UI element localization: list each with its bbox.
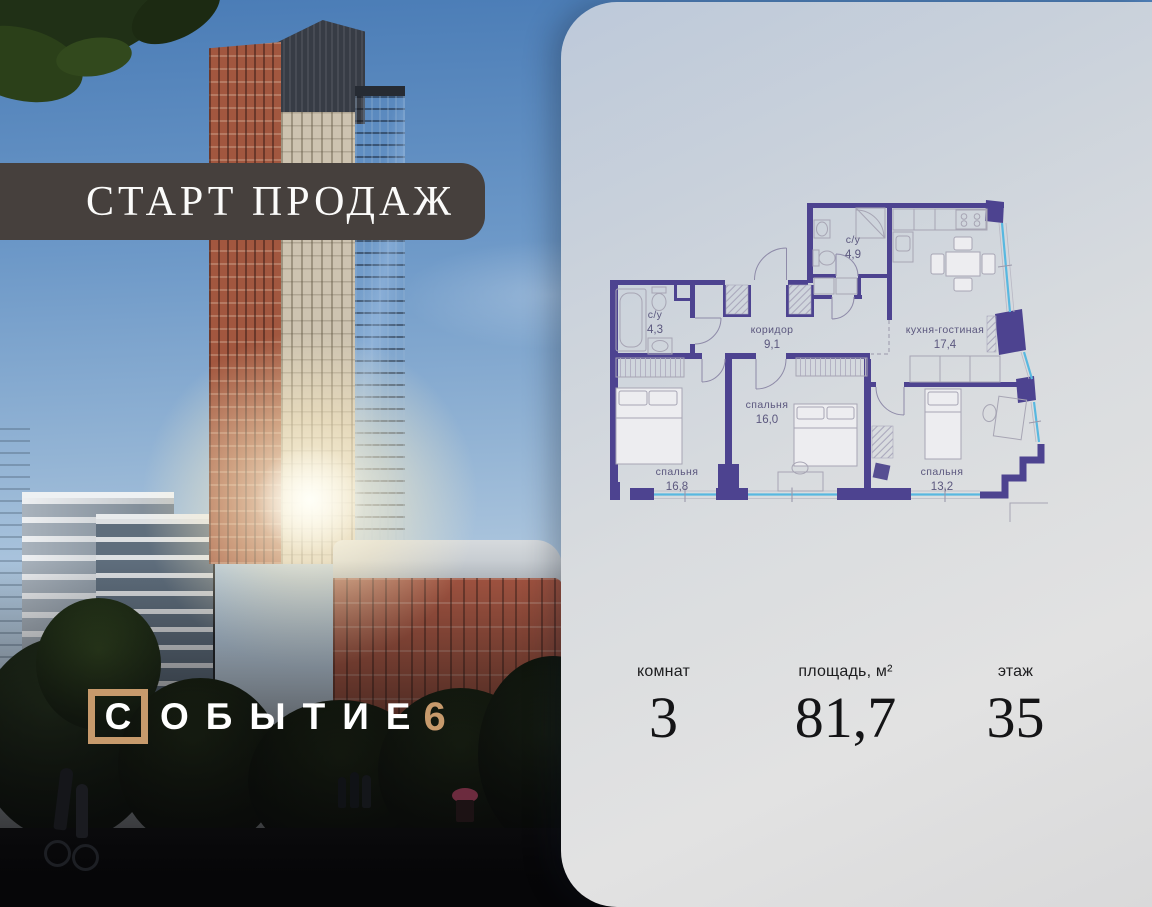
room-name-bedroom-center: спальня (746, 399, 789, 411)
room-area-kitchen-living: 17,4 (934, 339, 957, 351)
room-area-bathroom-large: 4,9 (845, 249, 861, 261)
logo-number: 6 (423, 697, 445, 737)
floorplan: с/у 4,3 с/у 4,9 коридор 9,1 кухня-гостин… (608, 192, 1048, 522)
logo-first-letter: С (105, 698, 132, 735)
sun-glare-core (248, 438, 372, 562)
room-area-bedroom-left: 16,8 (666, 481, 688, 493)
room-area-bathroom-small: 4,3 (647, 324, 663, 336)
stat-floor-value: 35 (933, 689, 1098, 747)
brand-logo: С ОБЫТИЕ 6 (88, 689, 446, 744)
room-name-corridor: коридор (751, 324, 794, 336)
room-area-corridor: 9,1 (764, 339, 780, 351)
bicycle-wheel (44, 840, 71, 867)
stat-area-label: площадь, м² (763, 663, 928, 681)
logo-square-frame: С (88, 689, 148, 744)
bicycle-wheel (72, 844, 99, 871)
room-name-bathroom-small: с/у (648, 309, 663, 321)
logo-wordmark: ОБЫТИЕ (160, 698, 427, 735)
stat-floor-label: этаж (933, 663, 1098, 681)
room-area-bedroom-right: 13,2 (931, 481, 953, 493)
pedestrian-silhouette (76, 784, 88, 838)
pedestrian-silhouette (350, 772, 359, 808)
stat-rooms: комнат 3 (581, 663, 746, 747)
stat-floor: этаж 35 (933, 663, 1098, 747)
pedestrian-silhouette (338, 777, 346, 808)
promo-ad-canvas: СТАРТ ПРОДАЖ С ОБЫТИЕ 6 (0, 0, 1152, 907)
info-panel: с/у 4,3 с/у 4,9 коридор 9,1 кухня-гостин… (561, 2, 1152, 907)
banner-text: СТАРТ ПРОДАЖ (86, 178, 455, 226)
flower-pot (456, 800, 474, 822)
stat-area-value: 81,7 (763, 689, 928, 747)
room-name-bedroom-left: спальня (656, 466, 699, 478)
stat-rooms-label: комнат (581, 663, 746, 681)
room-name-bathroom-large: с/у (846, 234, 861, 246)
room-name-bedroom-right: спальня (921, 466, 964, 478)
pedestrian-silhouette (362, 775, 371, 808)
room-area-bedroom-center: 16,0 (756, 414, 778, 426)
stat-rooms-value: 3 (581, 689, 746, 747)
stat-area: площадь, м² 81,7 (763, 663, 928, 747)
sales-start-banner: СТАРТ ПРОДАЖ (0, 163, 485, 240)
room-name-kitchen-living: кухня-гостиная (906, 324, 984, 336)
